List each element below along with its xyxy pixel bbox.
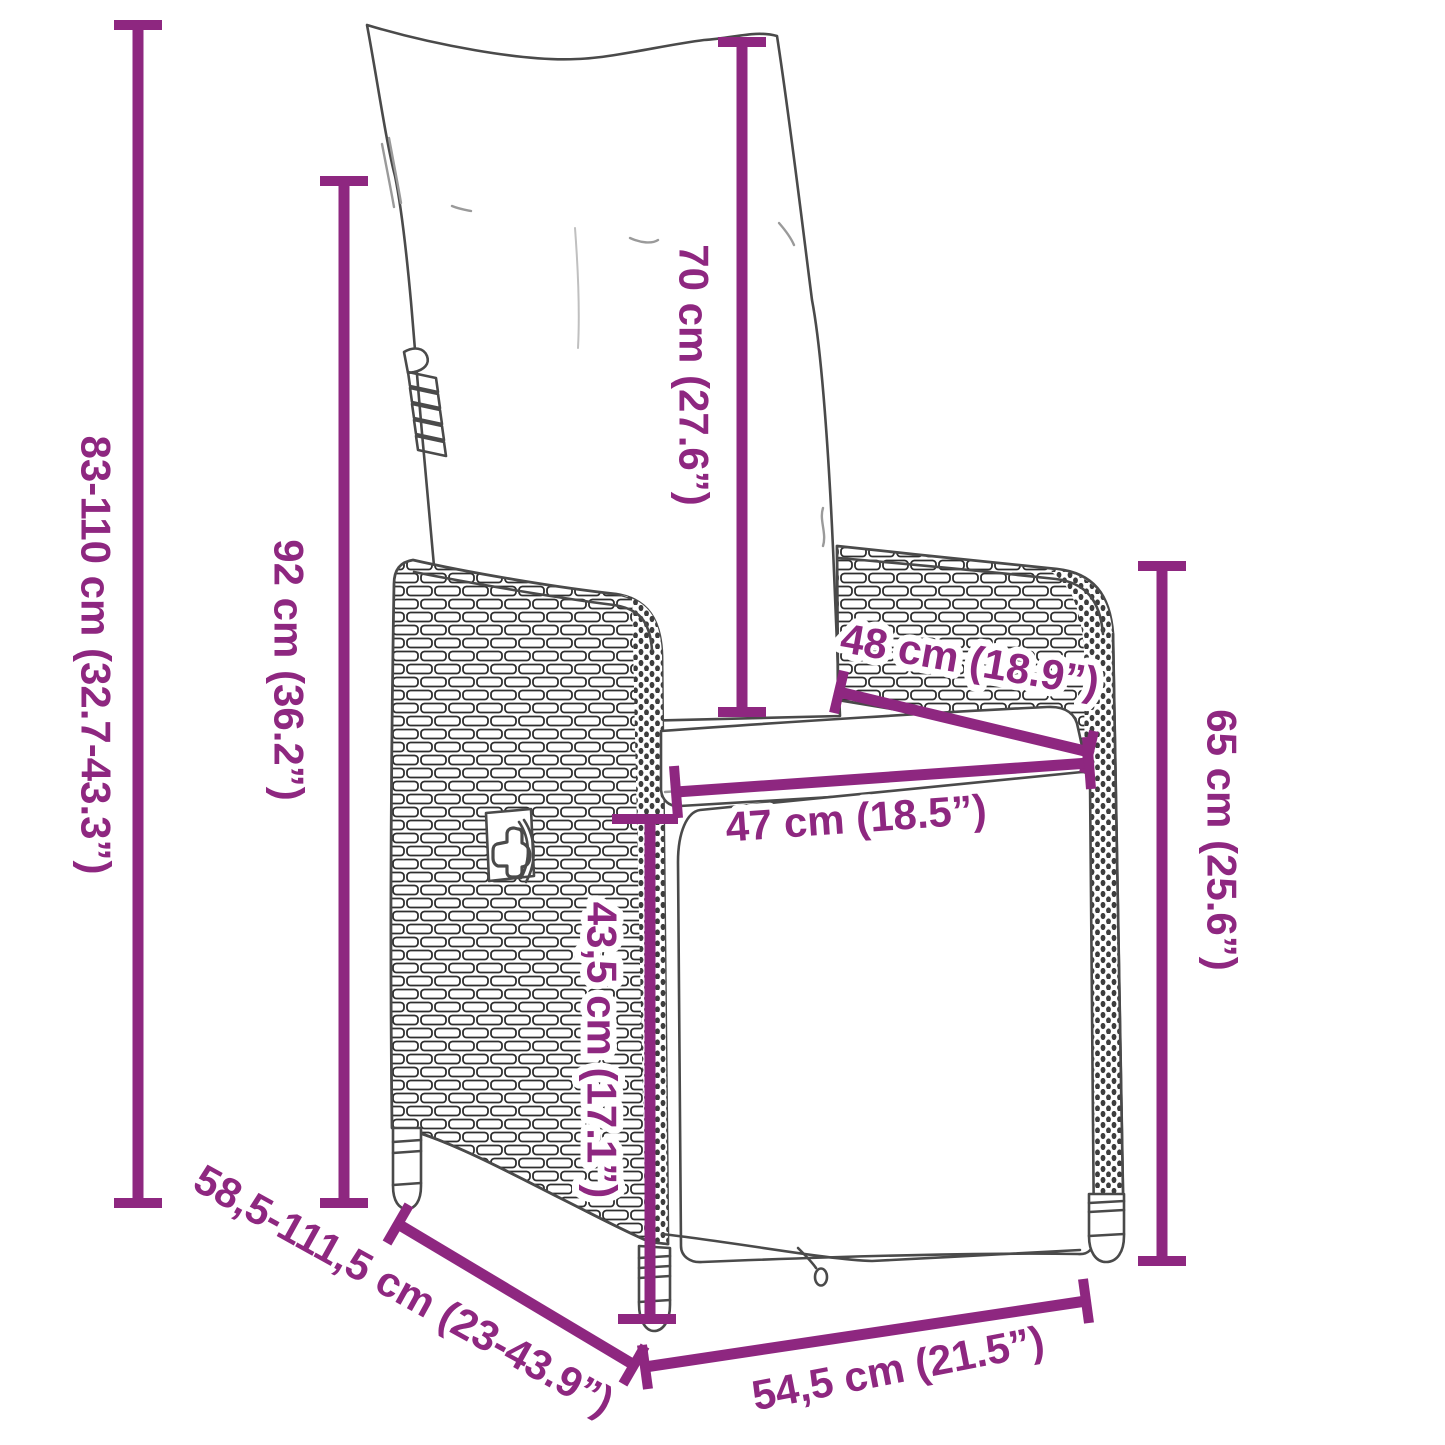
dim-line-backrest-height bbox=[320, 181, 368, 1203]
label-back-cushion-height: 70 cm (27.6”) bbox=[671, 244, 718, 505]
label-overall-height: 83-110 cm (32.7-43.3”) bbox=[73, 436, 120, 875]
dim-line-armrest-height bbox=[1138, 566, 1186, 1261]
label-armrest-height: 65 cm (25.6”) bbox=[1199, 709, 1246, 970]
label-seat-height: 43,5 cm (17.1”) bbox=[579, 902, 626, 1199]
front-left-leg bbox=[393, 1128, 421, 1209]
recline-lever bbox=[486, 809, 534, 882]
dim-line-overall-height bbox=[114, 25, 162, 1203]
dimension-diagram-canvas: 83-110 cm (32.7-43.3”) 92 cm (36.2”) 70 … bbox=[0, 0, 1445, 1445]
label-backrest-height: 92 cm (36.2”) bbox=[266, 539, 313, 800]
right-front-foot bbox=[1089, 1194, 1124, 1262]
chair-dimension-diagram: 83-110 cm (32.7-43.3”) 92 cm (36.2”) 70 … bbox=[0, 0, 1445, 1445]
